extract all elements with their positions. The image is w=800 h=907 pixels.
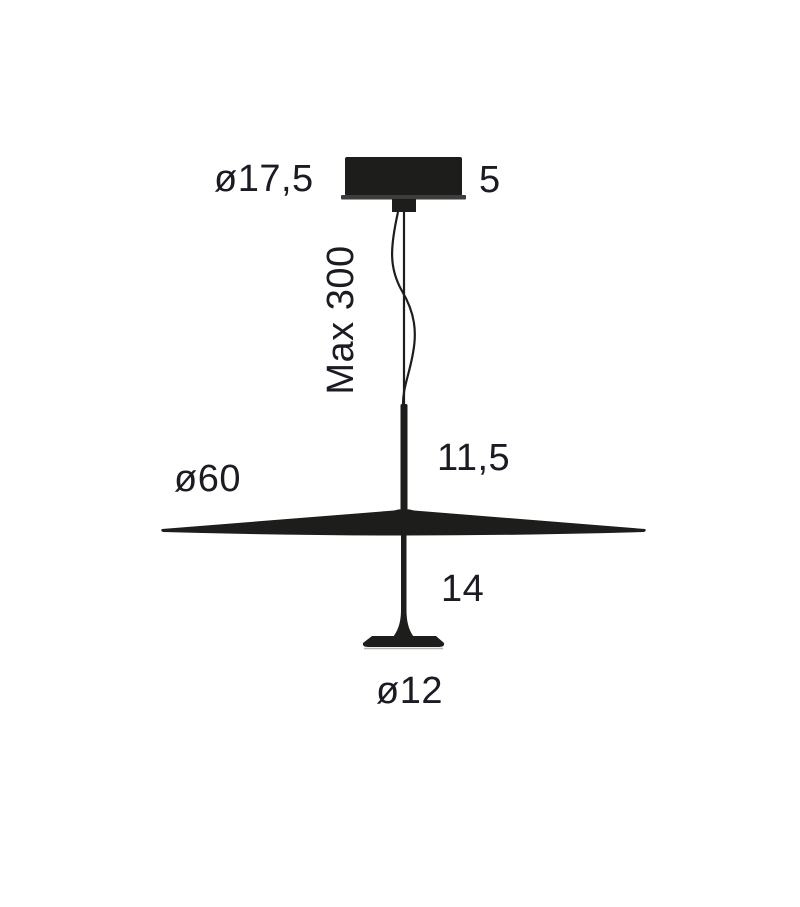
label-canopy-diameter: ø17,5 [214,158,314,200]
dimension-diagram: ø17,5 5 Max 300 11,5 ø60 14 ø12 [0,0,800,907]
lower-stem-shape [401,531,407,619]
label-canopy-height: 5 [479,159,501,201]
canopy-flange-shape [341,195,466,200]
label-lower-stem-length: 14 [441,568,484,610]
lamp-drawing [0,0,800,907]
cable-connector-shape [392,199,416,212]
label-shade-diameter: ø60 [174,458,241,500]
label-upper-stem-length: 11,5 [437,437,510,479]
upper-stem-shape [401,404,408,510]
stem-foot-flare [393,610,414,637]
label-cable-max-length: Max 300 [320,245,362,394]
label-foot-diameter: ø12 [376,670,443,712]
canopy-shape [345,157,462,196]
foot-disc-shape [363,636,444,647]
